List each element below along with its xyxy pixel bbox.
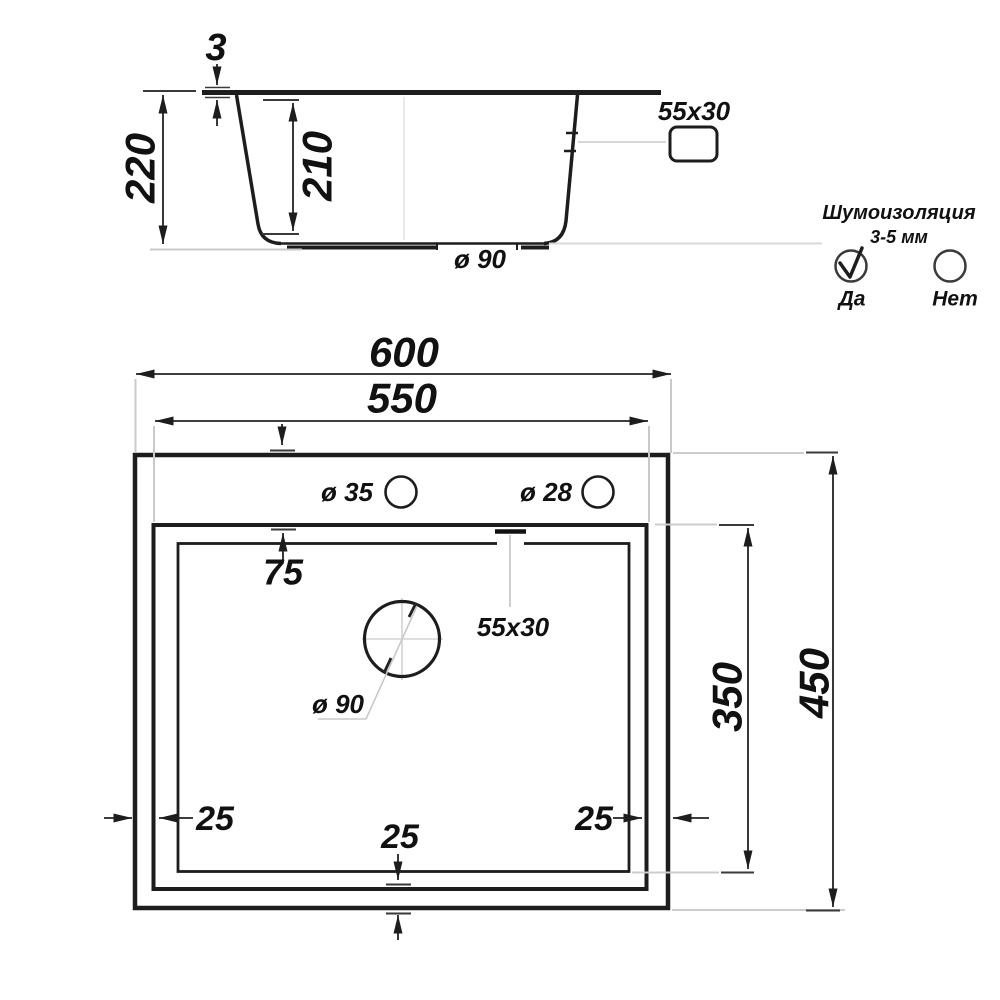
faucet-hole bbox=[386, 477, 417, 508]
yes-label: Да bbox=[837, 288, 866, 311]
sink-dimension-drawing: 55x30 220 210 3 ø 90 Шумоизоляция 3-5 мм… bbox=[0, 0, 1000, 1000]
insulation-title: Шумоизоляция bbox=[822, 202, 975, 224]
margin-left-label: 25 bbox=[195, 800, 235, 838]
bowl-left-wall bbox=[237, 95, 282, 244]
bowl-right-wall bbox=[544, 95, 578, 244]
insulation-range: 3-5 мм bbox=[870, 227, 928, 247]
side-view: 55x30 220 210 3 ø 90 bbox=[117, 27, 823, 274]
side-overflow-label: 55x30 bbox=[658, 96, 731, 126]
margin-bottom-label: 25 bbox=[380, 818, 420, 856]
insulation-legend: Шумоизоляция 3-5 мм Да Нет bbox=[822, 202, 977, 311]
width-bowl-label: 550 bbox=[367, 375, 437, 422]
top-drain-label: ø 90 bbox=[312, 689, 365, 719]
faucet-hole-label: ø 35 bbox=[321, 477, 374, 507]
no-circle bbox=[935, 251, 966, 282]
length-outer-label: 450 bbox=[791, 648, 838, 719]
side-drain-label: ø 90 bbox=[454, 244, 507, 274]
offset-top-label: 75 bbox=[263, 552, 304, 593]
side-depth-overall-label: 220 bbox=[117, 133, 164, 204]
drawing-svg: 55x30 220 210 3 ø 90 Шумоизоляция 3-5 мм… bbox=[0, 0, 1000, 1000]
dispenser-hole bbox=[583, 477, 614, 508]
side-depth-bowl-label: 210 bbox=[294, 131, 341, 202]
top-view: ø 35 ø 28 55x30 ø 90 600 550 75 bbox=[104, 329, 845, 941]
no-label: Нет bbox=[932, 288, 978, 311]
overflow-box bbox=[670, 127, 717, 161]
length-bowl-label: 350 bbox=[704, 662, 751, 732]
side-rim-thickness-label: 3 bbox=[205, 27, 226, 69]
dispenser-hole-label: ø 28 bbox=[520, 477, 573, 507]
margin-right-label: 25 bbox=[574, 800, 614, 838]
top-overflow-label: 55x30 bbox=[477, 612, 550, 642]
width-outer-label: 600 bbox=[369, 329, 439, 376]
